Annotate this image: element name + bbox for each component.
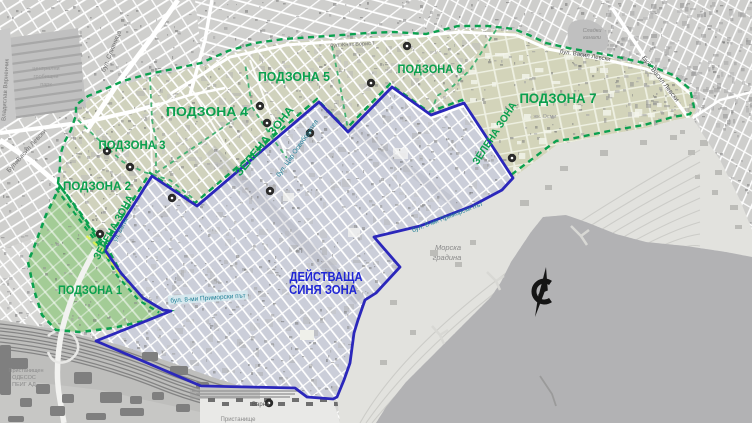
svg-text:централни: централни: [32, 66, 59, 72]
svg-text:СИНЯ ЗОНА: СИНЯ ЗОНА: [289, 282, 358, 297]
svg-text:жк. Осми: жк. Осми: [533, 114, 556, 120]
svg-text:Пристанище: Пристанище: [221, 417, 257, 423]
svg-text:канали: канали: [583, 35, 601, 41]
svg-text:ПЕИГ АД: ПЕИГ АД: [12, 382, 36, 388]
svg-text:градина: градина: [433, 253, 462, 262]
svg-text:ПОДЗОНА 3: ПОДЗОНА 3: [99, 138, 166, 152]
svg-text:гробищни: гробищни: [34, 74, 59, 80]
svg-text:Варна: Варна: [252, 402, 270, 408]
svg-text:ПОДЗОНА 4: ПОДЗОНА 4: [166, 104, 249, 119]
svg-text:Морска: Морска: [435, 243, 461, 252]
svg-text:ПОДЗОНА 6: ПОДЗОНА 6: [398, 62, 463, 76]
svg-text:ПОДЗОНА 5: ПОДЗОНА 5: [258, 70, 330, 84]
svg-text:ПОДЗОНА 7: ПОДЗОНА 7: [520, 91, 597, 106]
svg-text:Сладки: Сладки: [583, 28, 602, 34]
svg-text:Пристанищен: Пристанищен: [8, 368, 43, 374]
svg-text:ПОДЗОНА 1: ПОДЗОНА 1: [58, 283, 122, 297]
svg-text:ОДЕСОС: ОДЕСОС: [12, 375, 36, 381]
svg-text:ПОДЗОНА 2: ПОДЗОНА 2: [63, 179, 131, 193]
svg-text:парк: парк: [40, 82, 52, 88]
